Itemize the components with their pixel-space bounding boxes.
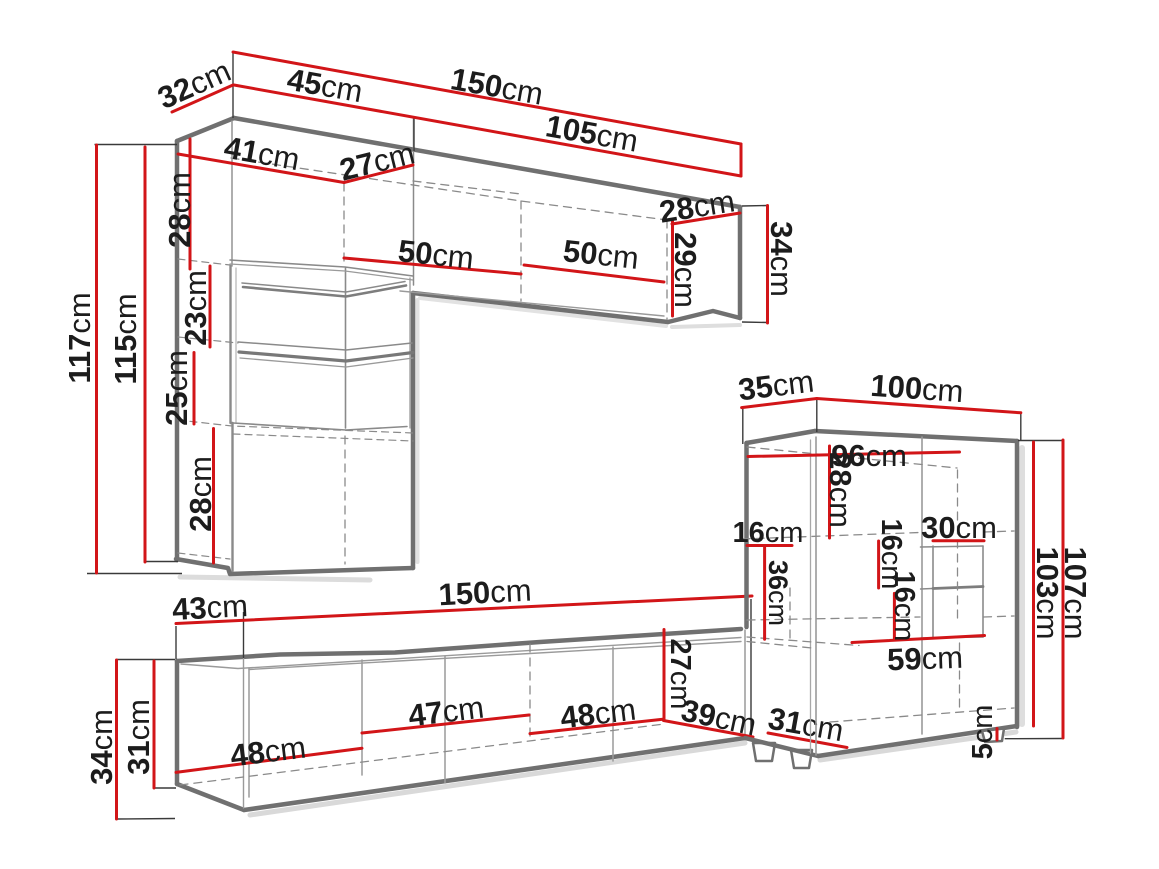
svg-text:23cm: 23cm xyxy=(178,270,213,346)
svg-text:16cm: 16cm xyxy=(888,571,920,642)
svg-text:100cm: 100cm xyxy=(869,367,964,408)
svg-text:34cm: 34cm xyxy=(765,221,800,297)
svg-text:150cm: 150cm xyxy=(438,572,533,612)
svg-text:115cm: 115cm xyxy=(108,293,143,384)
svg-text:59cm: 59cm xyxy=(887,639,964,677)
svg-text:34cm: 34cm xyxy=(84,709,119,785)
svg-text:117cm: 117cm xyxy=(62,292,97,383)
svg-text:103cm: 103cm xyxy=(1031,546,1066,639)
svg-text:29cm: 29cm xyxy=(669,232,704,308)
svg-text:5cm: 5cm xyxy=(967,705,999,760)
svg-text:30cm: 30cm xyxy=(921,510,997,545)
svg-text:28cm: 28cm xyxy=(183,456,218,532)
svg-text:16cm: 16cm xyxy=(733,517,804,549)
svg-text:31cm: 31cm xyxy=(121,699,156,775)
svg-text:43cm: 43cm xyxy=(171,588,249,627)
svg-text:28cm: 28cm xyxy=(162,172,197,248)
svg-text:28cm: 28cm xyxy=(824,452,859,528)
svg-text:36cm: 36cm xyxy=(763,560,793,626)
svg-text:25cm: 25cm xyxy=(159,350,194,426)
